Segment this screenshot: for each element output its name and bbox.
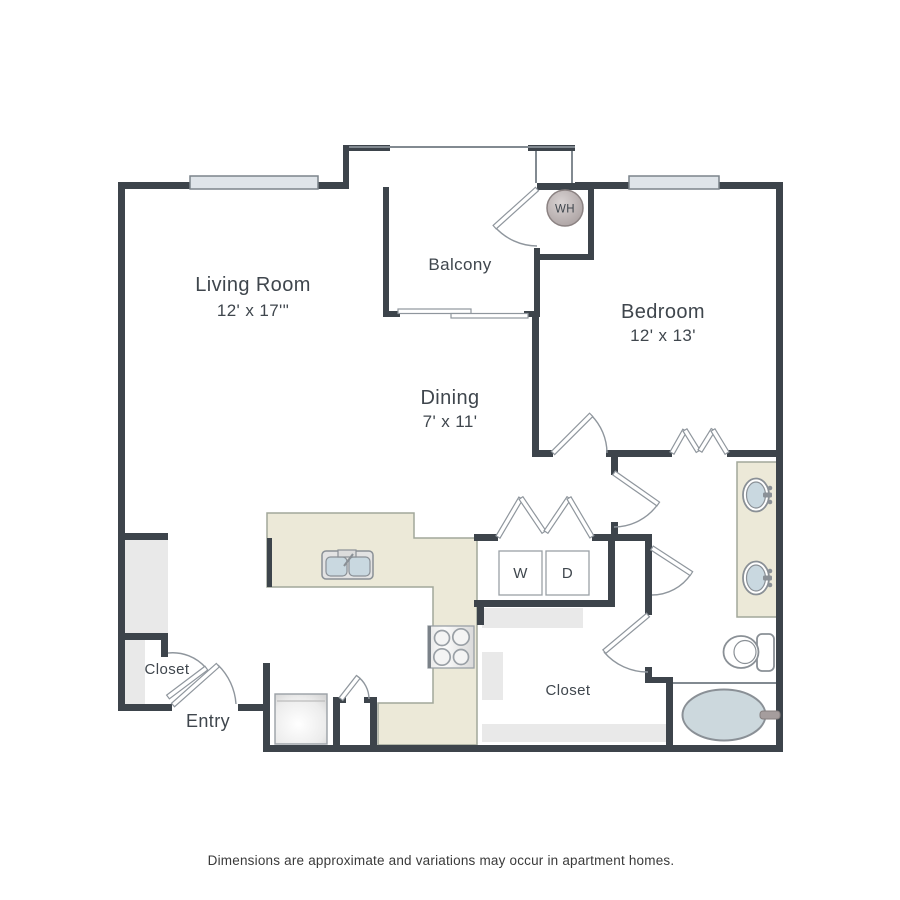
refrigerator (275, 694, 327, 744)
dining-dims: 7' x 11' (423, 412, 478, 431)
living-room-dims: 12' x 17'" (217, 301, 289, 320)
bedroom-closet-bifold (683, 429, 700, 453)
middle-closet-door (603, 613, 650, 653)
disclaimer-text: Dimensions are approximate and variation… (208, 853, 675, 868)
water-heater-door (493, 187, 538, 229)
toilet (724, 634, 775, 671)
entry-label: Entry (186, 711, 230, 731)
stove (428, 626, 474, 668)
left-closet-label: Closet (145, 661, 190, 678)
bedroom-label: Bedroom (621, 301, 705, 323)
laundry-bifold (519, 497, 546, 534)
laundry-bifold (496, 497, 523, 538)
bathtub (683, 690, 781, 741)
balcony-label: Balcony (428, 255, 491, 274)
living-room-window (190, 176, 318, 189)
water-heater-label: WH (555, 204, 575, 216)
bedroom-window (629, 176, 719, 189)
dryer-box: D (546, 551, 589, 595)
living-room-label: Living Room (195, 274, 311, 296)
room-labels: Living Room 12' x 17'" Balcony Bedroom 1… (145, 255, 705, 731)
bathroom-door-upper (613, 471, 660, 506)
bathroom-door-lower (651, 546, 693, 575)
pantry-door (339, 676, 360, 701)
bedroom-dims: 12' x 13' (630, 326, 696, 345)
middle-closet-label: Closet (546, 682, 591, 699)
washer-label: W (513, 565, 528, 582)
water-heater: WH (547, 190, 583, 226)
kitchen-sink (322, 550, 373, 579)
sliding-door (398, 309, 528, 318)
dining-label: Dining (420, 387, 479, 409)
floorplan-page: W D WH Living Room 12' x 17'" Balcony (0, 0, 900, 900)
dryer-label: D (562, 565, 573, 582)
washer-box: W (499, 551, 542, 595)
bedroom-closet-bifold (711, 429, 729, 454)
floorplan-drawing: W D WH Living Room 12' x 17'" Balcony (0, 0, 900, 900)
laundry-bifold (567, 497, 594, 538)
laundry-bifold (544, 497, 571, 534)
bedroom-door (551, 413, 592, 454)
